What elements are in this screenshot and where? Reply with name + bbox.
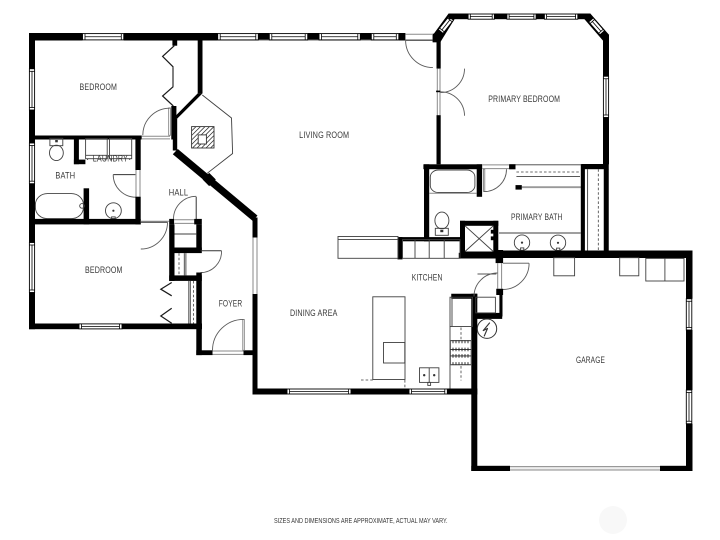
svg-text:PRIMARY BEDROOM: PRIMARY BEDROOM xyxy=(488,94,560,105)
svg-text:LIVING ROOM: LIVING ROOM xyxy=(299,130,349,141)
svg-text:SIZES AND DIMENSIONS ARE APPRO: SIZES AND DIMENSIONS ARE APPROXIMATE, AC… xyxy=(274,518,448,525)
svg-text:BEDROOM: BEDROOM xyxy=(80,82,118,93)
svg-text:BATH: BATH xyxy=(55,170,75,181)
svg-text:BEDROOM: BEDROOM xyxy=(85,265,123,276)
svg-text:FOYER: FOYER xyxy=(219,299,243,310)
svg-text:HALL: HALL xyxy=(169,188,189,199)
svg-text:PRIMARY BATH: PRIMARY BATH xyxy=(511,212,563,223)
svg-text:GARAGE: GARAGE xyxy=(576,355,605,366)
svg-text:KITCHEN: KITCHEN xyxy=(412,273,443,284)
svg-text:LAUNDRY: LAUNDRY xyxy=(93,153,128,164)
svg-text:DINING AREA: DINING AREA xyxy=(290,308,338,319)
